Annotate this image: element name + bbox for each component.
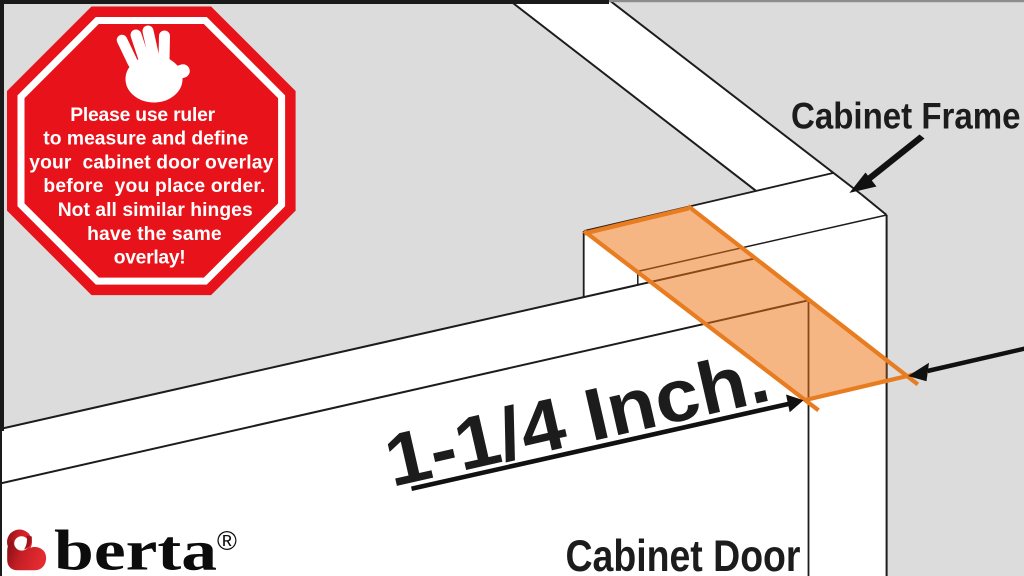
- svg-text:Cabinet Door: Cabinet Door: [566, 532, 801, 576]
- svg-text:your cabinet door overlay: your cabinet door overlay: [29, 152, 273, 173]
- svg-text:®: ®: [217, 526, 237, 556]
- svg-text:before you place order.: before you place order.: [43, 176, 265, 197]
- svg-text:have the same: have the same: [87, 224, 222, 245]
- svg-text:overlay!: overlay!: [114, 248, 186, 269]
- svg-text:Please use ruler: Please use ruler: [70, 105, 215, 126]
- svg-text:Not all similar hinges: Not all similar hinges: [58, 200, 253, 221]
- svg-text:Cabinet Frame: Cabinet Frame: [791, 95, 1021, 137]
- svg-text:berta: berta: [54, 520, 217, 576]
- svg-text:to measure and define: to measure and define: [43, 129, 248, 150]
